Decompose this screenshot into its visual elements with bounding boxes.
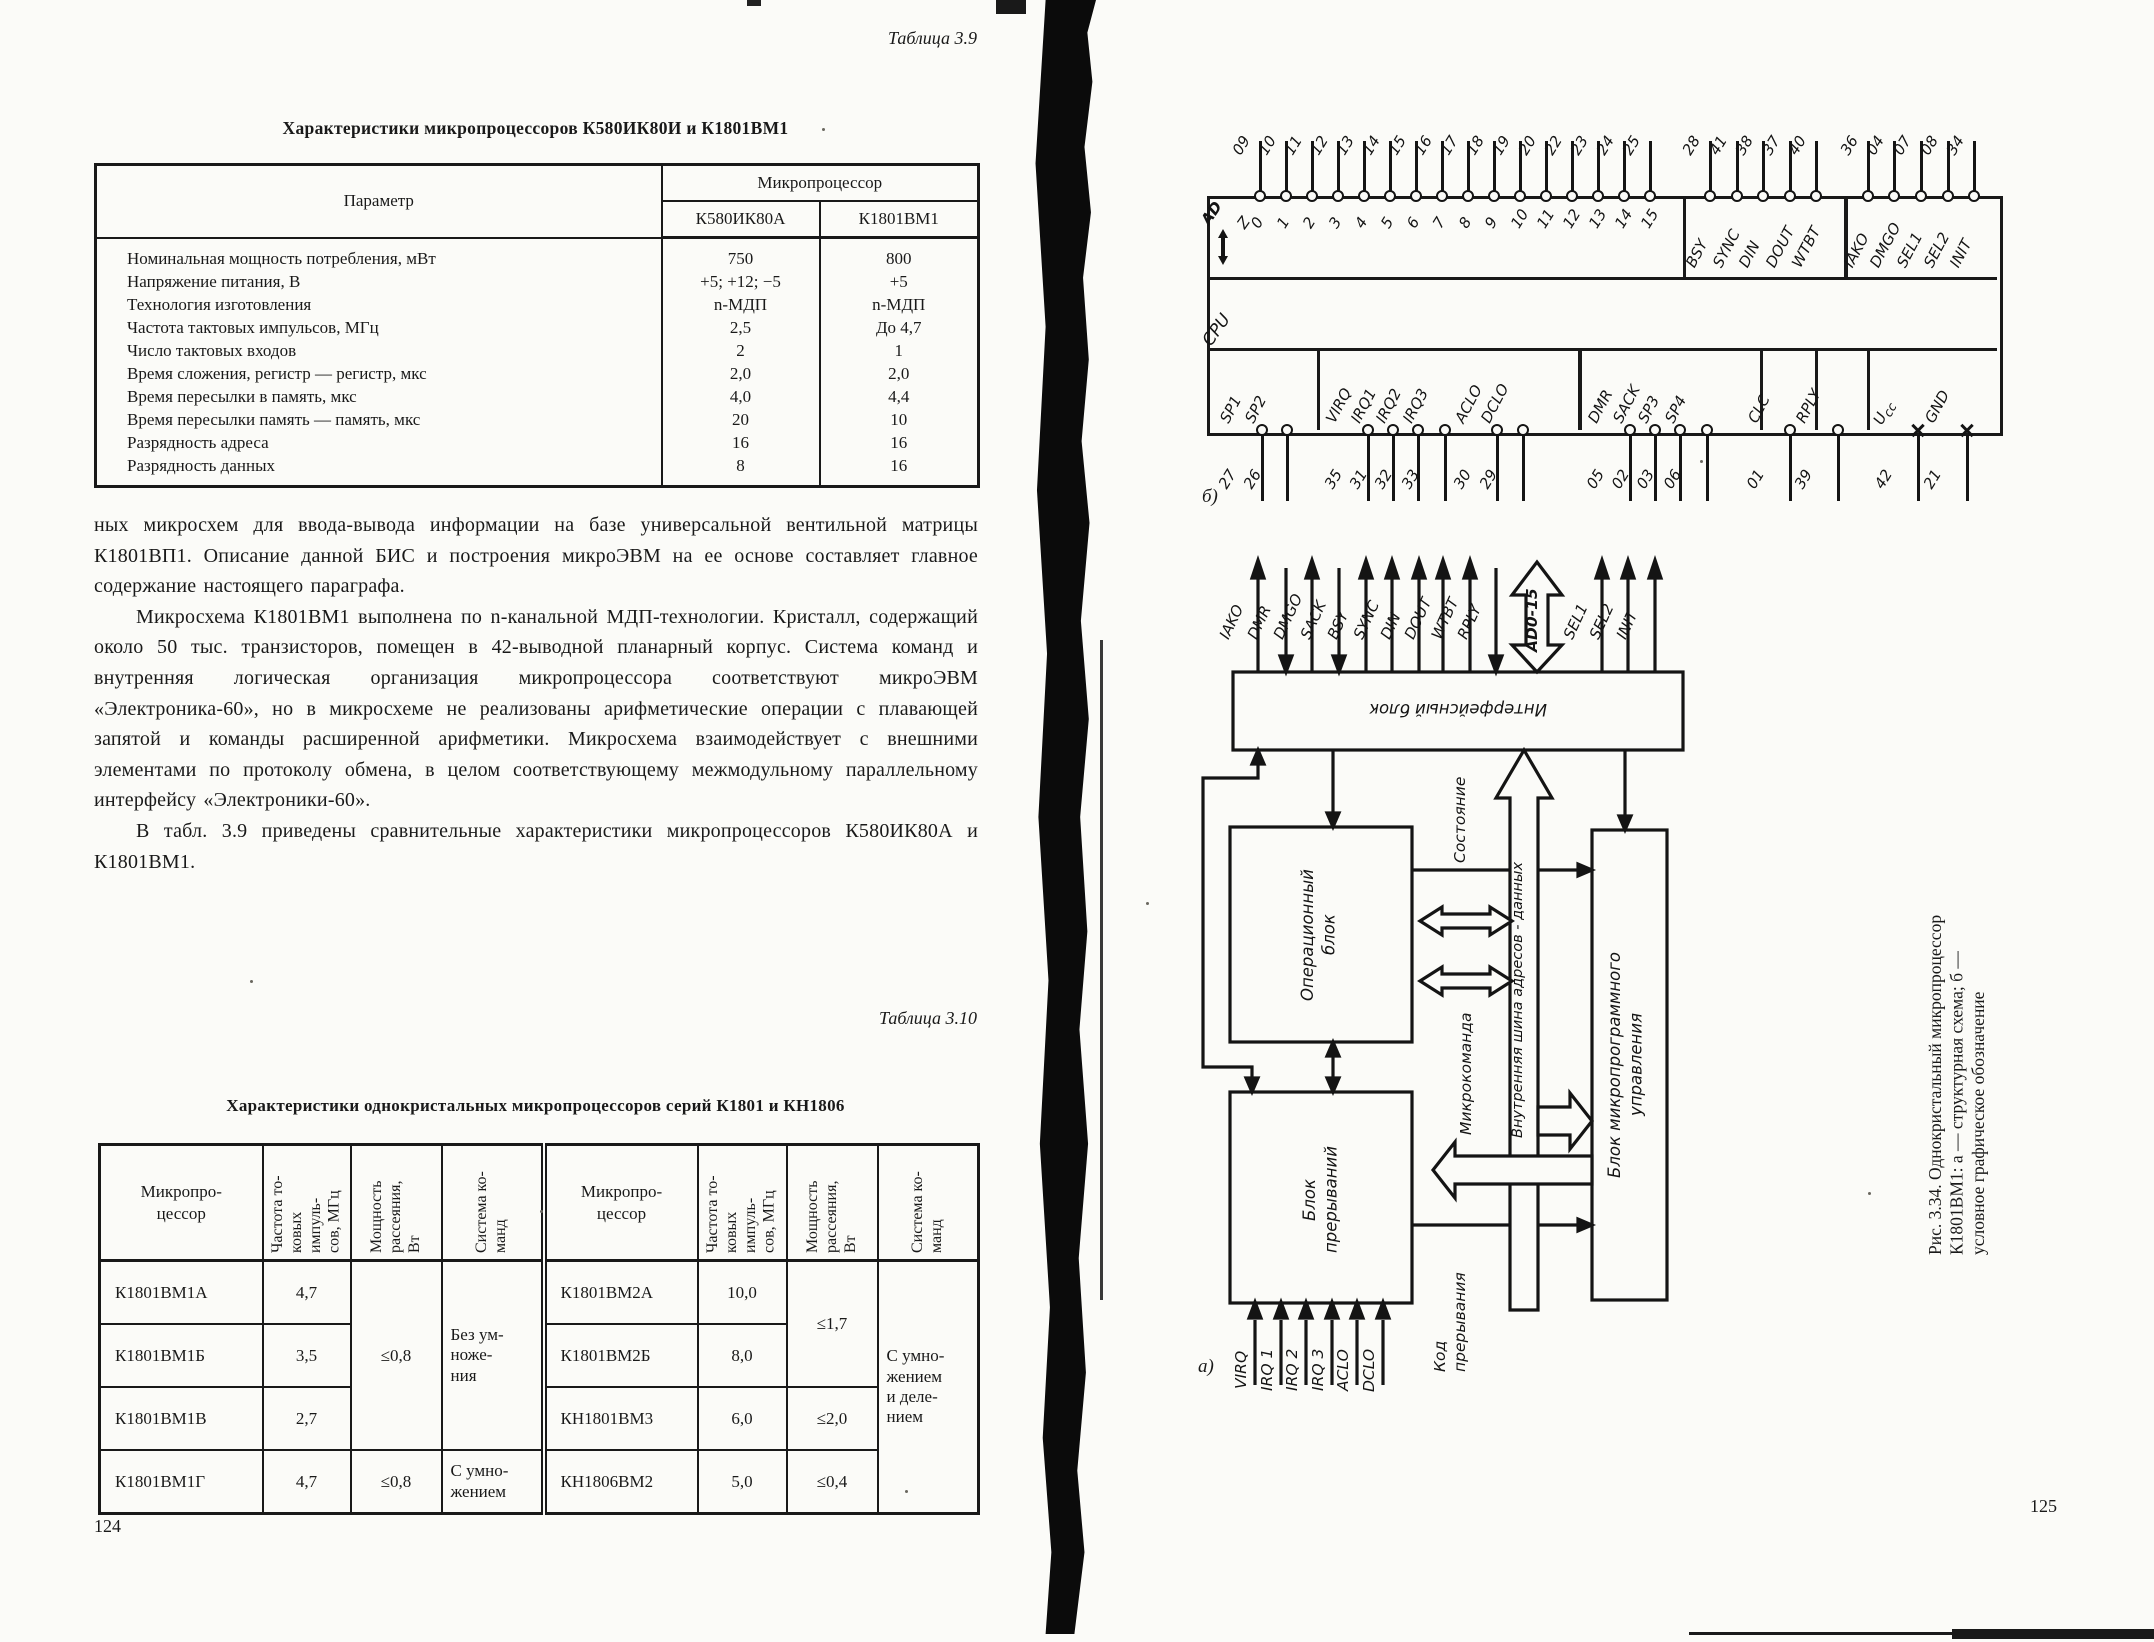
- pin-circle: [1439, 424, 1451, 436]
- freq: 8,0: [698, 1324, 787, 1387]
- mcu-block-label: Блок микропрограммного управления: [1604, 850, 1650, 1280]
- freq: 4,7: [263, 1450, 351, 1514]
- value-a: 8: [662, 454, 820, 487]
- value-a: n-МДП: [662, 293, 820, 316]
- param: Время пересылки в память, мкс: [96, 385, 662, 408]
- pin-circle: [1281, 424, 1293, 436]
- pin-line: [1649, 141, 1652, 193]
- pin-number: 30: [1450, 466, 1475, 492]
- pwr: ≤0,4: [787, 1450, 878, 1514]
- irq-block-label: Блок прерываний: [1299, 1115, 1343, 1285]
- pin-number: 35: [1321, 466, 1346, 492]
- table-3-9-caption: Таблица 3.9: [94, 28, 977, 49]
- mp-name: К1801ВМ2Б: [544, 1324, 698, 1387]
- freq: 2,7: [263, 1387, 351, 1450]
- pin-circle: [1810, 190, 1822, 202]
- table-row: Частота тактовых импульсов, МГц2,5До 4,7: [96, 316, 979, 339]
- pin-line: [1367, 435, 1370, 501]
- param: Число тактовых входов: [96, 339, 662, 362]
- table-3-9-title: Характеристики микропроцессоров К580ИК80…: [94, 118, 977, 139]
- pin-line: [1392, 435, 1395, 501]
- vertical-header: Система ко- манд: [473, 1153, 511, 1253]
- input-aclo: ACLO: [1333, 1324, 1353, 1416]
- table-row: Номинальная мощность потребления, мВт750…: [96, 238, 979, 271]
- pin-circle: [1514, 190, 1526, 202]
- freq: 5,0: [698, 1450, 787, 1514]
- table-3-10-caption: Таблица 3.10: [94, 1008, 977, 1029]
- col-freq: Частота то- ковых импуль- сов, МГц: [698, 1145, 787, 1261]
- param: Разрядность адреса: [96, 431, 662, 454]
- pin-circle: [1280, 190, 1292, 202]
- pwr: ≤0,8: [351, 1450, 442, 1514]
- pin-circle: [1862, 190, 1874, 202]
- pin-circle: [1384, 190, 1396, 202]
- pin-circle: [1701, 424, 1713, 436]
- input-irq1: IRQ 1: [1257, 1324, 1277, 1416]
- vertical-header: Частота то- ковых импуль- сов, МГц: [269, 1153, 345, 1253]
- pin-circle: [1832, 424, 1844, 436]
- table-3-10-title: Характеристики однокристальных микропроц…: [94, 1096, 977, 1116]
- pin-line: [1815, 141, 1818, 193]
- symbol-divider: [1578, 351, 1582, 430]
- mp-name: КН1801ВМ3: [544, 1387, 698, 1450]
- value-a: 2,5: [662, 316, 820, 339]
- col-pwr: Мощность рассеяния, Вт: [351, 1145, 442, 1261]
- bottom-edge-line: [1689, 1632, 1952, 1635]
- table-row: Разрядность данных816: [96, 454, 979, 487]
- page-number-left: 124: [94, 1516, 121, 1537]
- pin-line: [1496, 435, 1499, 501]
- speckle: [1700, 460, 1703, 463]
- pin-circle: [1254, 190, 1266, 202]
- binding-gutter-shadow: [1024, 0, 1096, 1634]
- scan-blob: [747, 0, 761, 6]
- pin-line: [1522, 435, 1525, 501]
- pin-circle: [1592, 190, 1604, 202]
- value-b: 1: [820, 339, 979, 362]
- pin-line: [1973, 141, 1976, 193]
- table-row: К1801ВМ1Г 4,7 ≤0,8 С умно- жением КН1806…: [100, 1450, 979, 1514]
- pin-circle: [1358, 190, 1370, 202]
- pin-line: [1837, 435, 1840, 501]
- pin-number: 39: [1791, 466, 1816, 492]
- param: Частота тактовых импульсов, МГц: [96, 316, 662, 339]
- interface-block-label: Интерфейсный блок: [1233, 700, 1683, 719]
- col-group: Микропроцессор: [662, 165, 979, 202]
- input-virq: VIRQ: [1231, 1324, 1251, 1416]
- speckle: [822, 128, 825, 131]
- input-irq3: IRQ 3: [1308, 1324, 1328, 1416]
- param: Время сложения, регистр — регистр, мкс: [96, 362, 662, 385]
- value-a: 2: [662, 339, 820, 362]
- pin-line: [1917, 435, 1920, 501]
- col-k1801: К1801ВМ1: [820, 201, 979, 238]
- pin-number: 21: [1920, 466, 1945, 492]
- pin-line: [1444, 435, 1447, 501]
- pin-circle: [1436, 190, 1448, 202]
- pin-circle: [1942, 190, 1954, 202]
- speckle: [540, 1210, 543, 1213]
- vertical-header: Мощность рассеяния, Вт: [804, 1153, 861, 1253]
- param: Технология изготовления: [96, 293, 662, 316]
- irq-code-label: Код прерывания: [1430, 1242, 1474, 1372]
- mp-name: К1801ВМ2А: [544, 1261, 698, 1325]
- pin-circle: [1644, 190, 1656, 202]
- symbol-divider: [1683, 199, 1686, 277]
- speckle: [1146, 902, 1149, 905]
- col-mp: Микропро- цессор: [544, 1145, 698, 1261]
- pin-circle: [1704, 190, 1716, 202]
- col-param: Параметр: [96, 165, 662, 238]
- pin-circle: [1968, 190, 1980, 202]
- sys-merged: С умно- жением и деле- нием: [878, 1261, 979, 1514]
- pin-circle: [1410, 190, 1422, 202]
- vertical-header: Система ко- манд: [909, 1153, 947, 1253]
- scan-blob: [996, 0, 1026, 14]
- paragraph: ных микросхем для ввода-вывода информаци…: [94, 510, 978, 602]
- table-row: Параметр Микропроцессор: [96, 165, 979, 202]
- pin-circle: [1517, 424, 1529, 436]
- param: Напряжение питания, В: [96, 270, 662, 293]
- table-row: Время пересылки память — память, мкс2010: [96, 408, 979, 431]
- pin-circle: [1306, 190, 1318, 202]
- value-b: +5: [820, 270, 979, 293]
- table-row: Время сложения, регистр — регистр, мкс2,…: [96, 362, 979, 385]
- microcommand-label: Микрокоманда: [1456, 998, 1478, 1150]
- col-pwr: Мощность рассеяния, Вт: [787, 1145, 878, 1261]
- value-b: До 4,7: [820, 316, 979, 339]
- speckle: [905, 1490, 908, 1493]
- pin-line: [1789, 435, 1792, 501]
- speckle: [250, 980, 253, 983]
- vertical-header: Частота то- ковых импуль- сов, МГц: [704, 1153, 780, 1253]
- col-k580: К580ИК80А: [662, 201, 820, 238]
- input-dclo: DCLO: [1359, 1324, 1379, 1416]
- part-label-b: б): [1202, 486, 1218, 508]
- value-b: 4,4: [820, 385, 979, 408]
- x-mark-icon: [1910, 422, 1926, 438]
- input-irq2: IRQ 2: [1282, 1324, 1302, 1416]
- mp-name: КН1806ВМ2: [544, 1450, 698, 1514]
- page-number-right: 125: [2030, 1496, 2057, 1517]
- param: Номинальная мощность потребления, мВт: [96, 238, 662, 271]
- value-a: +5; +12; −5: [662, 270, 820, 293]
- value-a: 16: [662, 431, 820, 454]
- up-down-arrow-icon: [1217, 228, 1229, 266]
- pin-number: 42: [1871, 466, 1896, 492]
- ad-bus-top-label: AD0-15: [1522, 580, 1546, 660]
- pin-circle: [1784, 424, 1796, 436]
- pwr: ≤2,0: [787, 1387, 878, 1450]
- sys: С умно- жением: [442, 1450, 544, 1514]
- pin-circle: [1488, 190, 1500, 202]
- part-label-a: а): [1198, 1356, 1214, 1378]
- vertical-header: Мощность рассеяния, Вт: [368, 1153, 425, 1253]
- pin-circle: [1915, 190, 1927, 202]
- gutter-streak: [1100, 640, 1103, 1300]
- figure-caption: Рис. 3.34. Однокристальный микропроцессо…: [1925, 795, 1997, 1255]
- alu-block-label: Операционный блок: [1297, 850, 1341, 1020]
- table-row: Технология изготовленияn-МДПn-МДП: [96, 293, 979, 316]
- pin-line: [1966, 435, 1969, 501]
- mp-name: К1801ВМ1Б: [100, 1324, 263, 1387]
- pin-circle: [1888, 190, 1900, 202]
- pin-line: [1679, 435, 1682, 501]
- table-3-10: Микропро- цессор Частота то- ковых импул…: [98, 1143, 980, 1515]
- param: Время пересылки память — память, мкс: [96, 408, 662, 431]
- pin-circle: [1757, 190, 1769, 202]
- param: Разрядность данных: [96, 454, 662, 487]
- value-a: 2,0: [662, 362, 820, 385]
- freq: 10,0: [698, 1261, 787, 1325]
- book-scan: { "doc": { "left": { "caption39": "Табли…: [0, 0, 2154, 1642]
- pin-line: [1417, 435, 1420, 501]
- table-header-row: Микропро- цессор Частота то- ковых импул…: [100, 1145, 979, 1261]
- value-b: n-МДП: [820, 293, 979, 316]
- speckle: [1868, 1192, 1871, 1195]
- value-b: 10: [820, 408, 979, 431]
- paragraph: Микросхема К1801ВМ1 выполнена по n-канал…: [94, 602, 978, 816]
- pin-line: [1629, 435, 1632, 501]
- bottom-edge-bar: [1952, 1629, 2154, 1639]
- mp-name: К1801ВМ1В: [100, 1387, 263, 1450]
- pin-circle: [1618, 190, 1630, 202]
- value-b: 2,0: [820, 362, 979, 385]
- pwr-merged: ≤1,7: [787, 1261, 878, 1388]
- mp-name: К1801ВМ1Г: [100, 1450, 263, 1514]
- value-a: 750: [662, 238, 820, 271]
- table-row: Число тактовых входов21: [96, 339, 979, 362]
- internal-bus-label: Внутренняя шина адресов - данных: [1509, 700, 1535, 1300]
- freq: 4,7: [263, 1261, 351, 1325]
- freq: 6,0: [698, 1387, 787, 1450]
- freq: 3,5: [263, 1324, 351, 1387]
- pin-number: 01: [1743, 466, 1768, 492]
- sys-merged: Без ум- ноже- ния: [442, 1261, 544, 1451]
- pwr-merged: ≤0,8: [351, 1261, 442, 1451]
- speckle: [312, 648, 315, 651]
- table-row: Время пересылки в память, мкс4,04,4: [96, 385, 979, 408]
- symbol-divider: [1210, 348, 1997, 351]
- paragraph: В табл. 3.9 приведены сравнительные хара…: [94, 816, 978, 877]
- x-mark-icon: [1959, 422, 1975, 438]
- table-3-9: Параметр Микропроцессор К580ИК80А К1801В…: [94, 163, 980, 488]
- pin-circle: [1566, 190, 1578, 202]
- pin-line: [1706, 435, 1709, 501]
- pin-circle: [1540, 190, 1552, 202]
- table-row: Напряжение питания, В+5; +12; −5+5: [96, 270, 979, 293]
- mp-name: К1801ВМ1А: [100, 1261, 263, 1325]
- value-b: 16: [820, 431, 979, 454]
- pin-line: [1654, 435, 1657, 501]
- pin-circle: [1784, 190, 1796, 202]
- col-sys: Система ко- манд: [442, 1145, 544, 1261]
- pin-circle: [1332, 190, 1344, 202]
- value-a: 20: [662, 408, 820, 431]
- state-label: Состояние: [1450, 772, 1472, 868]
- col-mp: Микропро- цессор: [100, 1145, 263, 1261]
- pin-number: 27: [1215, 466, 1240, 492]
- value-b: 16: [820, 454, 979, 487]
- pin-line: [1261, 435, 1264, 501]
- symbol-divider: [1210, 277, 1997, 280]
- pin-circle: [1462, 190, 1474, 202]
- pin-line: [1286, 435, 1289, 501]
- pin-number: 05: [1583, 466, 1608, 492]
- body-text: ных микросхем для ввода-вывода информаци…: [94, 510, 978, 877]
- value-b: 800: [820, 238, 979, 271]
- table-row: К1801ВМ1А 4,7 ≤0,8 Без ум- ноже- ния К18…: [100, 1261, 979, 1325]
- col-sys: Система ко- манд: [878, 1145, 979, 1261]
- pin-circle: [1731, 190, 1743, 202]
- table-row: Разрядность адреса1616: [96, 431, 979, 454]
- col-freq: Частота то- ковых импуль- сов, МГц: [263, 1145, 351, 1261]
- value-a: 4,0: [662, 385, 820, 408]
- symbol-divider: [1317, 351, 1320, 430]
